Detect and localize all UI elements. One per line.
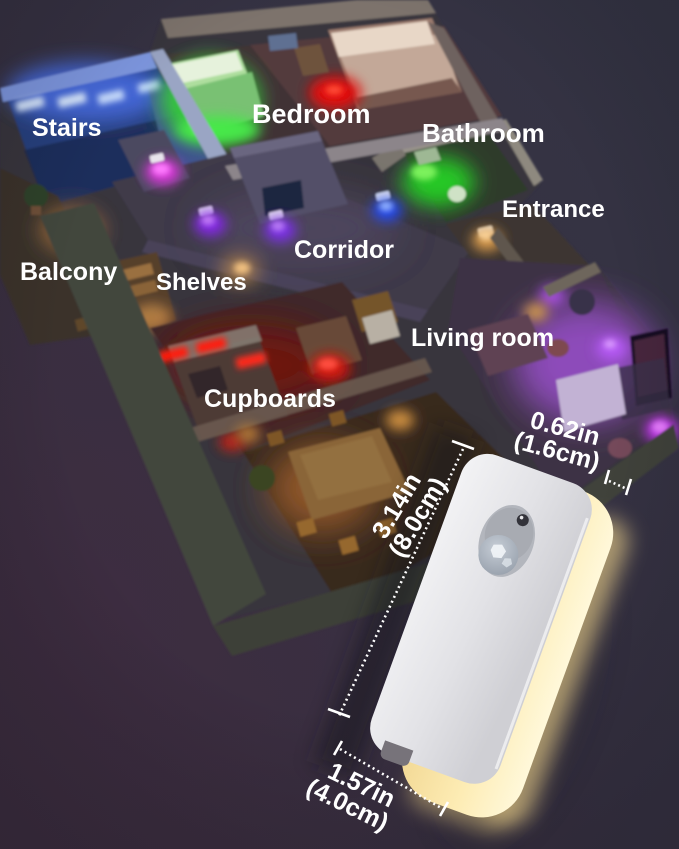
svg-text:Bedroom: Bedroom (252, 99, 371, 129)
svg-text:Shelves: Shelves (156, 269, 247, 296)
svg-text:Cupboards: Cupboards (204, 385, 336, 413)
svg-text:Bathroom: Bathroom (422, 118, 545, 148)
svg-text:Balcony: Balcony (20, 258, 117, 286)
svg-text:Entrance: Entrance (502, 196, 605, 223)
svg-text:Living room: Living room (411, 324, 554, 352)
svg-text:Corridor: Corridor (294, 236, 394, 264)
svg-text:Stairs: Stairs (32, 114, 101, 142)
